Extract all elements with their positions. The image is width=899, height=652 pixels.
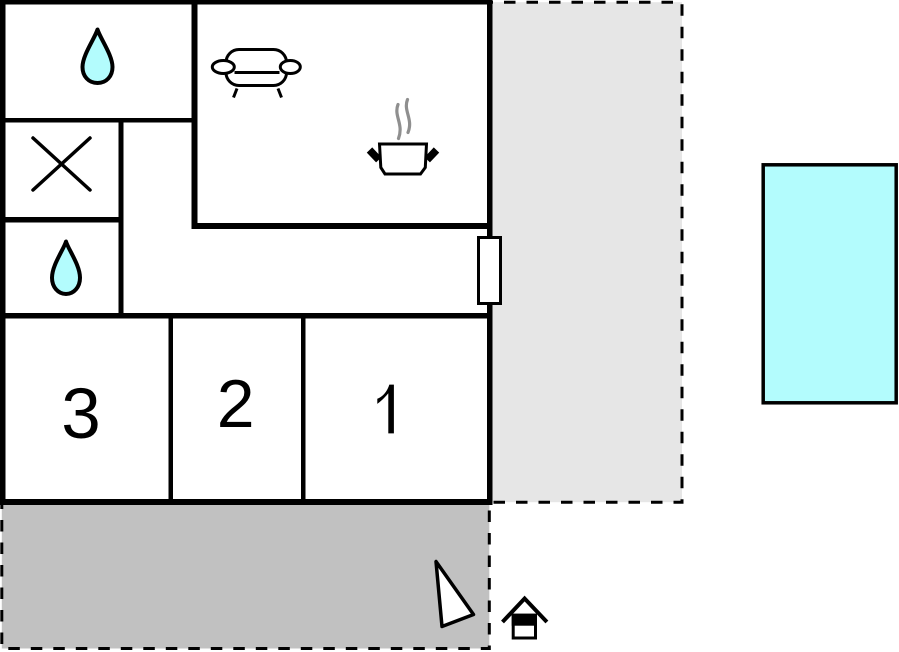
svg-text:2: 2 — [217, 366, 255, 442]
svg-text:3: 3 — [61, 375, 101, 454]
